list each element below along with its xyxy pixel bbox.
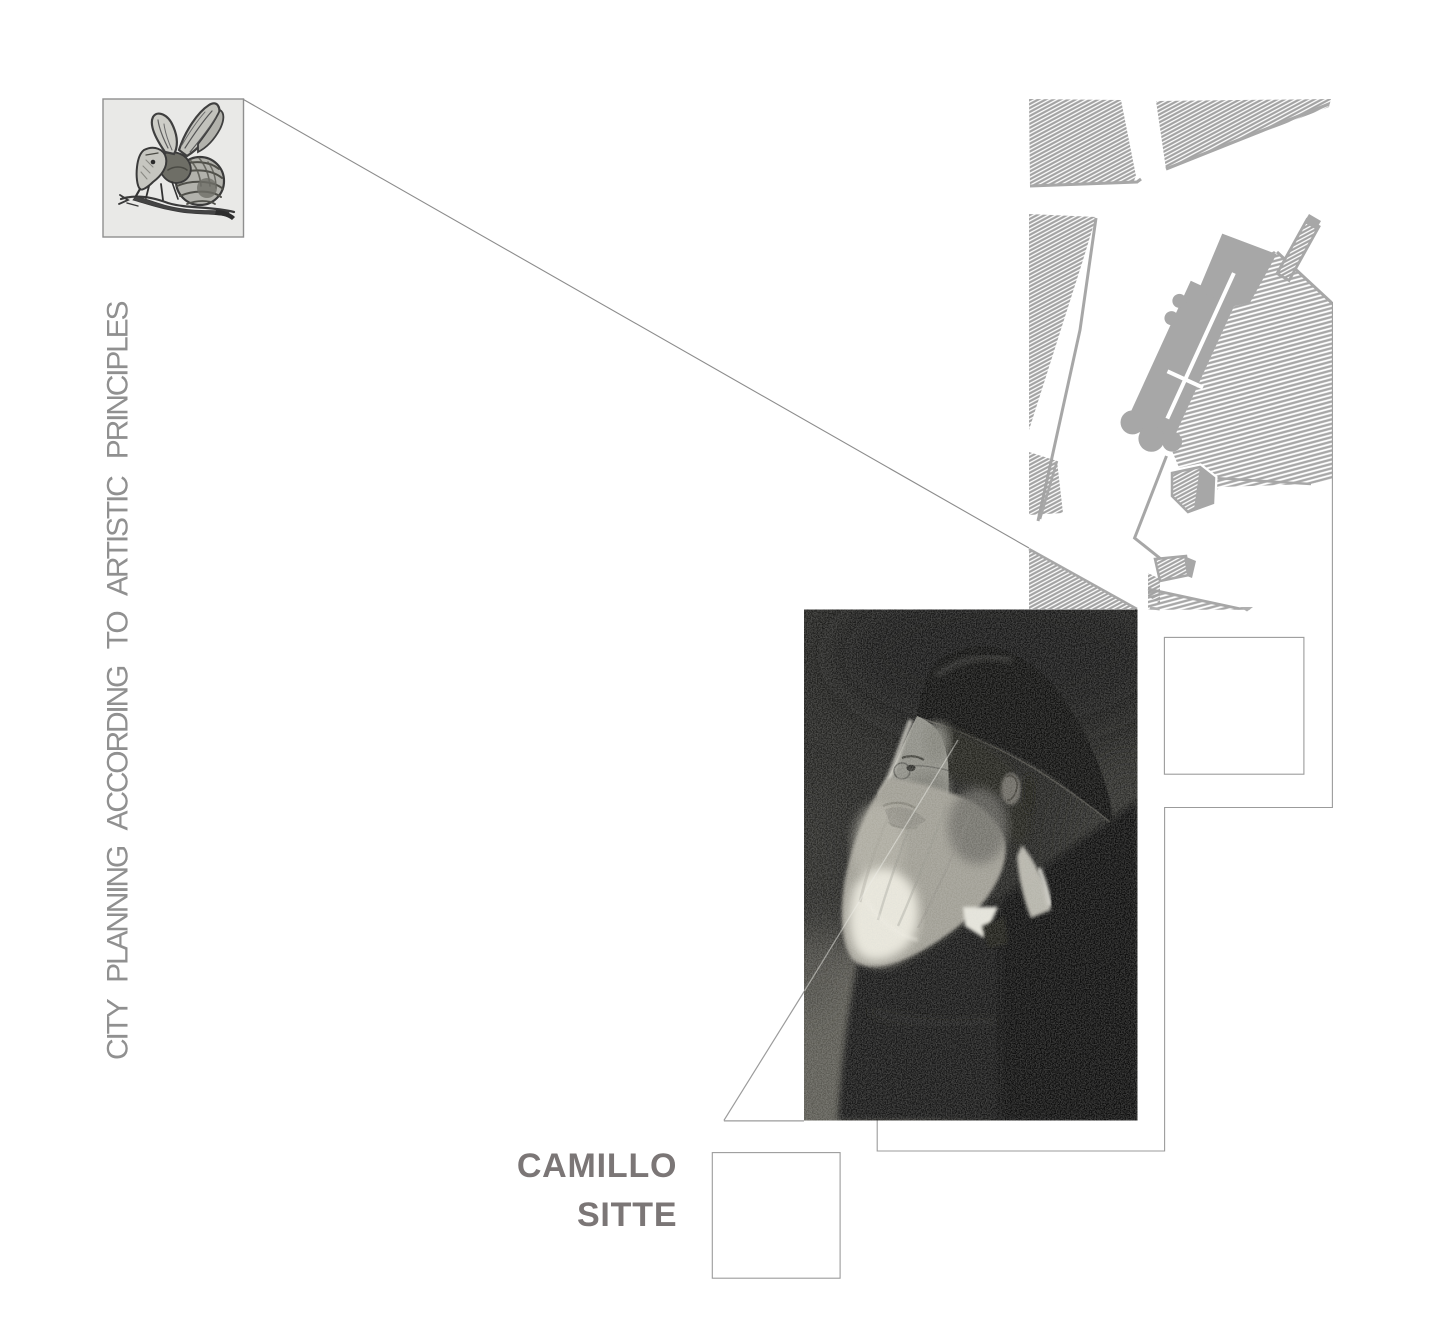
svg-text:CAMILLO: CAMILLO <box>517 1147 677 1185</box>
svg-text:SITTE: SITTE <box>577 1196 677 1234</box>
svg-text:CITY PLANNING ACCORDING TO ART: CITY PLANNING ACCORDING TO ARTISTIC PRIN… <box>102 298 135 1060</box>
